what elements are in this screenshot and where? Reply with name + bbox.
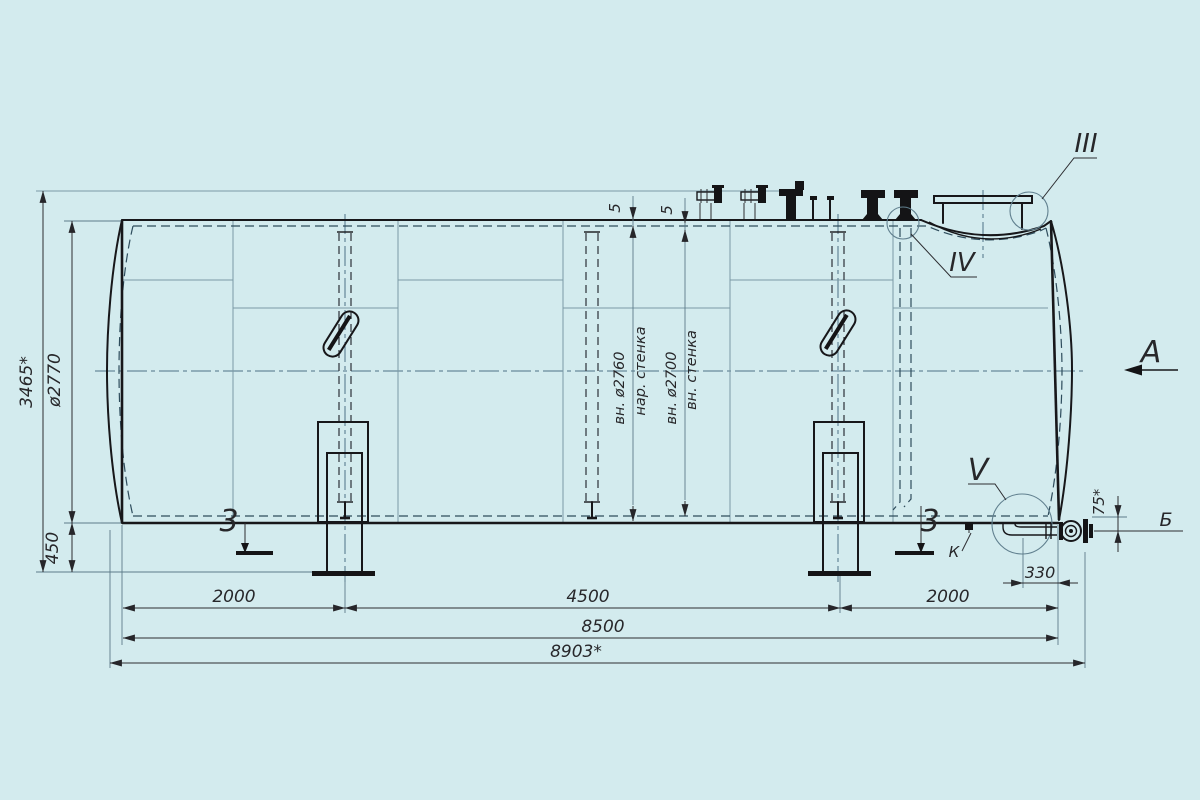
- section-label-right: 3: [920, 504, 939, 539]
- detail-label-v: V: [968, 453, 991, 488]
- tank-drawing: 3465* ø2770 450 2000 4500 2000 8500 8903…: [0, 0, 1200, 800]
- outer-wall-name-label: нар. стенка: [633, 326, 649, 415]
- item-label-k: К: [949, 543, 961, 561]
- dim-center-span: 4500: [566, 587, 609, 607]
- detail-label-iv: IV: [949, 248, 977, 278]
- dim-right-span: 2000: [926, 587, 969, 607]
- dim-left-span: 2000: [212, 587, 255, 607]
- dim-overall-height: 3465*: [17, 356, 37, 408]
- dim-drain-offset: 330: [1025, 563, 1056, 582]
- dim-shell-diameter: ø2770: [45, 353, 65, 408]
- dim-drain-height: 75*: [1090, 488, 1108, 515]
- inner-wall-name-label: вн. стенка: [684, 330, 700, 410]
- inner-wall-dia-label: вн. ø2700: [664, 351, 680, 424]
- drawing-canvas: 3465* ø2770 450 2000 4500 2000 8500 8903…: [0, 0, 1200, 800]
- detail-label-iii: III: [1074, 129, 1097, 159]
- dim-wall-thk-inner: 5: [658, 205, 676, 215]
- dim-shell-length: 8500: [581, 617, 624, 637]
- drawing-background: [0, 0, 1200, 800]
- outer-wall-dia-label: вн. ø2760: [612, 351, 628, 424]
- axis-label-b: Б: [1159, 509, 1172, 531]
- dim-wall-thk-outer: 5: [606, 203, 624, 213]
- section-label-left: 3: [219, 504, 238, 539]
- dim-overall-length: 8903*: [550, 642, 602, 662]
- dim-ground-clearance: 450: [43, 532, 63, 564]
- view-label-a: A: [1139, 335, 1162, 370]
